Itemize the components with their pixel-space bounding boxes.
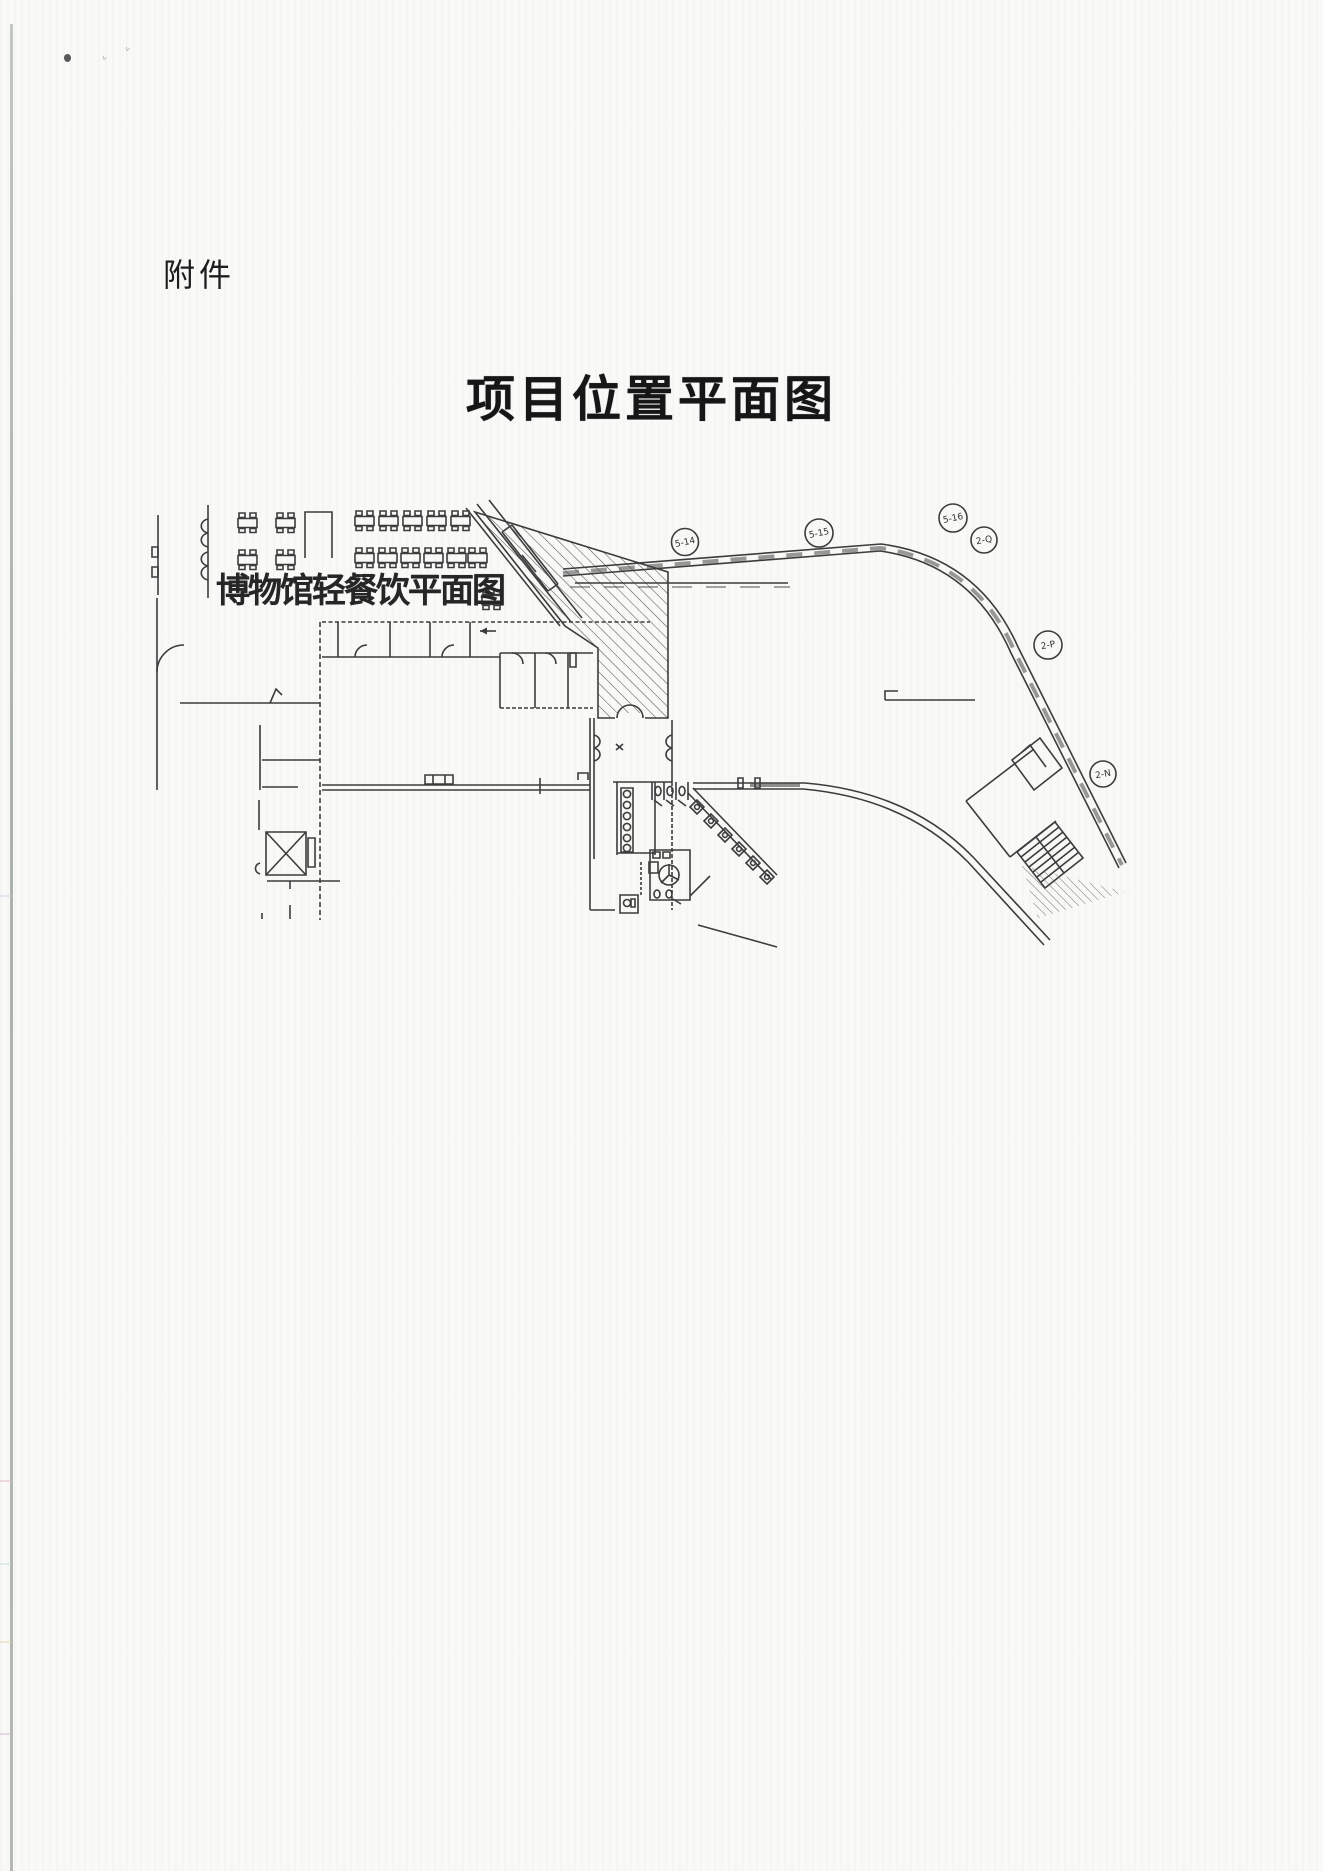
rotated-rooms	[966, 738, 1125, 918]
scan-streak	[0, 1563, 11, 1565]
grid-bubble-5-14: 5-14	[672, 529, 699, 556]
page-title: 项目位置平面图	[466, 360, 837, 431]
scan-mark: ᵥ	[101, 50, 110, 64]
grid-bubble-2-P: 2-P	[1034, 631, 1062, 659]
grid-bubble-2-Q: 2-Q	[971, 527, 997, 553]
scanner-edge-line	[10, 24, 13, 1871]
scan-streak	[0, 1480, 11, 1482]
svg-text:2-N: 2-N	[1095, 769, 1112, 782]
dining-tables-cluster-left	[238, 513, 295, 570]
scan-streak	[0, 895, 11, 897]
scan-streak	[0, 1641, 11, 1643]
ground-hatch	[1022, 865, 1125, 918]
dining-hall-walls	[320, 622, 600, 920]
annex-room	[590, 895, 638, 913]
elevator-block	[256, 800, 341, 919]
diagonal-toilet-stalls	[688, 788, 777, 947]
accessible-toilet-room	[641, 850, 690, 904]
scan-streak	[0, 1733, 11, 1735]
left-rooms	[157, 598, 320, 790]
u-shaped-counter	[305, 512, 332, 558]
svg-text:2-Q: 2-Q	[975, 535, 993, 548]
hatched-project-area	[475, 512, 668, 722]
left-wall-and-doors	[152, 505, 208, 598]
scan-mark: ᵥ	[124, 41, 133, 55]
svg-text:5-15: 5-15	[808, 527, 830, 541]
plan-caption: 博物馆轻餐饮平面图	[216, 563, 504, 612]
grid-bubble-5-16: 5-16	[939, 504, 967, 532]
svg-text:5-14: 5-14	[674, 536, 696, 550]
grid-bubble-2-N: 2-N	[1090, 761, 1116, 787]
grid-bubble-5-15: 5-15	[805, 519, 833, 547]
scan-speck	[64, 54, 71, 62]
svg-text:5-16: 5-16	[942, 512, 964, 526]
entrance-vestibule	[616, 720, 672, 782]
scanned-document-page: ᵥ ᵥ 附件 项目位置平面图	[0, 0, 1323, 1871]
svg-text:2-P: 2-P	[1040, 640, 1056, 652]
attachment-label: 附件	[163, 250, 235, 296]
